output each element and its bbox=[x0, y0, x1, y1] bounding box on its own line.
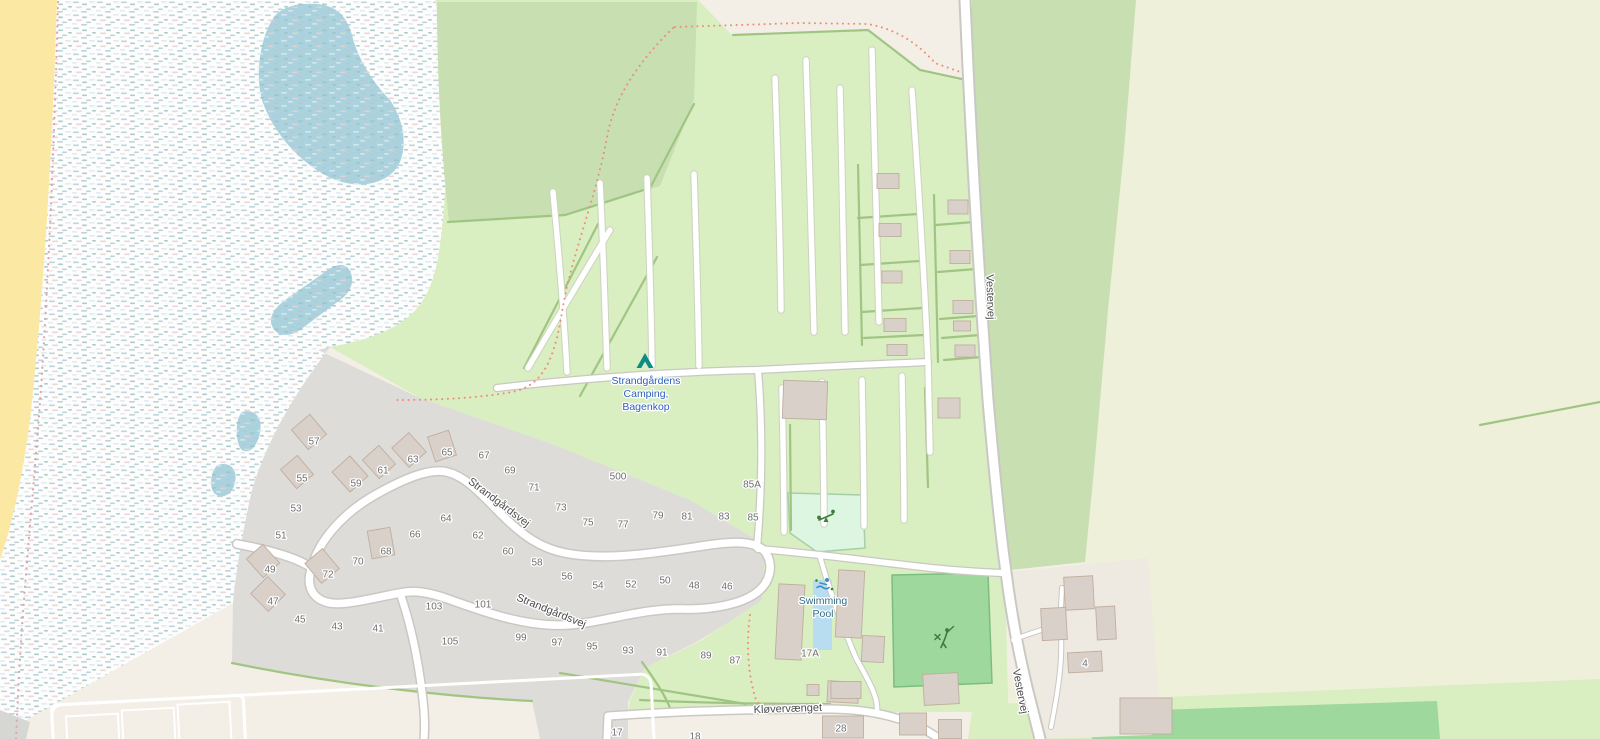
house-number: 4 bbox=[1082, 659, 1088, 670]
building bbox=[1041, 607, 1068, 640]
house-number: 79 bbox=[652, 511, 664, 522]
campsite-label: Strandgårdens bbox=[612, 375, 681, 387]
building bbox=[879, 224, 901, 237]
house-number: 60 bbox=[502, 547, 514, 558]
swimming-pool-label: Swimming bbox=[799, 595, 848, 607]
campsite-label: Camping, bbox=[624, 388, 669, 400]
building bbox=[953, 301, 973, 314]
house-number: 48 bbox=[688, 581, 700, 592]
house-number: 70 bbox=[352, 557, 364, 568]
house-number: 54 bbox=[592, 581, 604, 592]
house-number: 50 bbox=[659, 576, 671, 587]
building bbox=[861, 635, 884, 662]
building bbox=[1120, 698, 1172, 734]
house-number: 62 bbox=[472, 531, 484, 542]
street-label: Kløvervænget bbox=[753, 702, 822, 716]
house-number: 85A bbox=[743, 480, 761, 491]
house-number: 41 bbox=[372, 624, 384, 635]
house-number: 61 bbox=[377, 466, 389, 477]
house-number: 18 bbox=[689, 732, 701, 739]
house-number: 72 bbox=[322, 570, 334, 581]
building bbox=[882, 271, 902, 283]
house-number: 43 bbox=[331, 622, 343, 633]
house-number: 103 bbox=[426, 602, 443, 613]
house-number: 93 bbox=[622, 646, 634, 657]
house-number: 105 bbox=[442, 637, 459, 648]
house-number: 99 bbox=[515, 633, 527, 644]
house-number: 75 bbox=[582, 518, 594, 529]
campsite-label: Bagenkop bbox=[622, 401, 669, 413]
leaf-left bbox=[815, 579, 818, 582]
house-number: 56 bbox=[561, 572, 573, 583]
map-canvas[interactable]: StrandgårdsvejStrandgårdsvejVestervejVes… bbox=[0, 0, 1600, 739]
house-number: 52 bbox=[625, 580, 637, 591]
house-number: 49 bbox=[264, 565, 276, 576]
house-number: 45 bbox=[294, 615, 306, 626]
house-number: 71 bbox=[528, 483, 540, 494]
house-number: 51 bbox=[275, 531, 287, 542]
building bbox=[939, 720, 962, 739]
house-number: 55 bbox=[296, 474, 308, 485]
house-number: 59 bbox=[350, 479, 362, 490]
building bbox=[831, 682, 861, 699]
house-number: 57 bbox=[308, 437, 320, 448]
building bbox=[950, 251, 970, 264]
house-number: 87 bbox=[729, 656, 741, 667]
camp-lane-12 bbox=[902, 376, 904, 520]
house-number: 68 bbox=[380, 547, 392, 558]
house-number: 47 bbox=[267, 597, 279, 608]
house-number: 17A bbox=[801, 649, 819, 660]
house-number: 66 bbox=[409, 530, 421, 541]
seesaw-rider-left bbox=[817, 516, 821, 520]
house-number: 77 bbox=[617, 520, 629, 531]
house-number: 73 bbox=[555, 503, 567, 514]
camp-lane-11 bbox=[862, 380, 864, 526]
hedge-line bbox=[790, 425, 791, 530]
house-number: 85 bbox=[747, 513, 759, 524]
building bbox=[948, 200, 968, 214]
house-number: 91 bbox=[656, 648, 668, 659]
building bbox=[807, 685, 819, 696]
sports-pitch bbox=[892, 573, 992, 687]
house-number: 65 bbox=[441, 448, 453, 459]
house-number: 67 bbox=[478, 451, 490, 462]
house-number: 46 bbox=[721, 582, 733, 593]
house-number: 53 bbox=[290, 504, 302, 515]
house-number: 83 bbox=[718, 512, 730, 523]
building bbox=[955, 345, 975, 357]
house-number: 101 bbox=[475, 600, 492, 611]
house-number: 63 bbox=[407, 455, 419, 466]
building bbox=[954, 321, 971, 331]
building bbox=[938, 398, 960, 418]
building bbox=[782, 380, 827, 420]
building bbox=[923, 673, 960, 706]
building bbox=[884, 319, 906, 332]
osm-map-svg: StrandgårdsvejStrandgårdsvejVestervejVes… bbox=[0, 0, 1600, 739]
seesaw-rider-right bbox=[831, 510, 835, 514]
street-label: Vestervej bbox=[983, 274, 997, 320]
building bbox=[1064, 576, 1095, 610]
swimming-pool-label: Pool bbox=[812, 608, 833, 620]
building bbox=[877, 174, 899, 189]
house-number: 17 bbox=[611, 728, 623, 739]
building bbox=[887, 345, 907, 356]
house-number: 89 bbox=[700, 651, 712, 662]
building bbox=[1096, 606, 1117, 640]
leaf-right bbox=[831, 588, 834, 591]
house-number: 97 bbox=[551, 638, 563, 649]
swimmer-head bbox=[825, 578, 829, 582]
house-number: 58 bbox=[531, 558, 543, 569]
house-number: 64 bbox=[440, 514, 452, 525]
house-number: 500 bbox=[610, 472, 627, 483]
house-number: 28 bbox=[835, 724, 847, 735]
building bbox=[900, 713, 927, 735]
house-number: 81 bbox=[681, 512, 693, 523]
house-number: 95 bbox=[586, 642, 598, 653]
house-number: 69 bbox=[504, 466, 516, 477]
